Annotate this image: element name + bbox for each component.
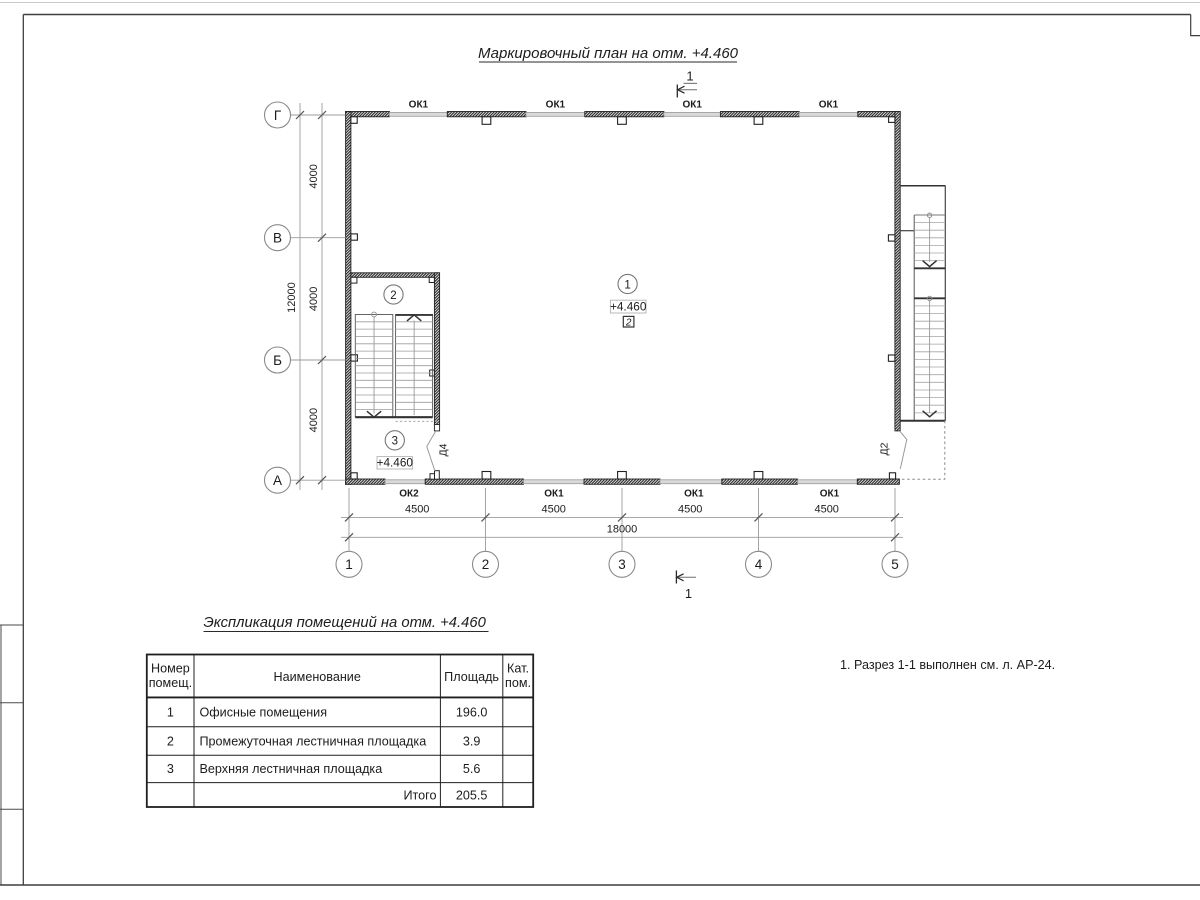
svg-text:2: 2 <box>390 290 396 302</box>
svg-text:Промежуточная лестничная площа: Промежуточная лестничная площадка <box>200 734 427 748</box>
svg-text:Наименование: Наименование <box>274 670 361 684</box>
svg-text:18000: 18000 <box>607 524 638 536</box>
svg-text:ОК1: ОК1 <box>409 100 429 111</box>
svg-text:Итого: Итого <box>403 789 436 803</box>
svg-text:3: 3 <box>618 557 626 572</box>
svg-text:Верхняя лестничная площадка: Верхняя лестничная площадка <box>200 762 383 776</box>
svg-text:12000: 12000 <box>286 282 298 313</box>
svg-text:+4.460: +4.460 <box>377 456 414 470</box>
svg-text:205.5: 205.5 <box>456 789 488 803</box>
svg-text:ОК1: ОК1 <box>684 489 704 500</box>
svg-text:1: 1 <box>624 279 630 291</box>
svg-text:А: А <box>273 473 282 488</box>
svg-text:4000: 4000 <box>308 408 320 432</box>
svg-text:Б: Б <box>273 353 282 368</box>
svg-text:ОК1: ОК1 <box>544 489 564 500</box>
svg-text:3: 3 <box>392 436 398 448</box>
svg-text:Номер: Номер <box>151 662 190 676</box>
svg-text:ОК2: ОК2 <box>399 489 419 500</box>
svg-text:1: 1 <box>345 557 353 572</box>
svg-text:5: 5 <box>891 557 899 572</box>
svg-text:5.6: 5.6 <box>463 762 481 776</box>
svg-text:Офисные помещения: Офисные помещения <box>200 706 328 720</box>
svg-text:ОК1: ОК1 <box>819 100 839 111</box>
svg-text:1: 1 <box>685 586 692 601</box>
svg-text:В: В <box>273 231 282 246</box>
svg-text:4000: 4000 <box>308 287 320 311</box>
svg-text:4000: 4000 <box>308 164 320 188</box>
svg-text:3.9: 3.9 <box>463 734 481 748</box>
svg-text:Маркировочный план на отм. +4.: Маркировочный план на отм. +4.460 <box>478 45 739 62</box>
svg-text:2: 2 <box>482 557 490 572</box>
svg-text:2: 2 <box>625 317 632 328</box>
svg-text:ОК1: ОК1 <box>820 489 840 500</box>
svg-text:помещ.: помещ. <box>149 676 192 690</box>
svg-text:4500: 4500 <box>814 504 838 516</box>
svg-text:пом.: пом. <box>505 676 531 690</box>
svg-text:Д4: Д4 <box>437 443 449 456</box>
svg-text:3: 3 <box>167 762 174 776</box>
svg-text:4500: 4500 <box>405 504 429 516</box>
svg-text:ОК1: ОК1 <box>682 100 702 111</box>
svg-text:Кат.: Кат. <box>507 662 529 676</box>
svg-text:4500: 4500 <box>678 504 702 516</box>
svg-text:4: 4 <box>755 557 763 572</box>
svg-text:Экспликация помещений на отм.: Экспликация помещений на отм. +4.460 <box>204 615 487 631</box>
svg-text:Площадь: Площадь <box>444 670 499 684</box>
svg-text:1: 1 <box>167 706 174 720</box>
svg-text:Д2: Д2 <box>878 442 890 455</box>
svg-text:ОК1: ОК1 <box>546 100 566 111</box>
svg-text:1: 1 <box>686 69 693 84</box>
svg-text:2: 2 <box>167 734 174 748</box>
svg-text:1. Разрез 1-1 выполнен см. л.: 1. Разрез 1-1 выполнен см. л. АР-24. <box>840 658 1055 672</box>
svg-text:Г: Г <box>274 108 282 123</box>
svg-text:196.0: 196.0 <box>456 706 488 720</box>
svg-text:4500: 4500 <box>541 504 565 516</box>
svg-text:+4.460: +4.460 <box>610 300 647 314</box>
